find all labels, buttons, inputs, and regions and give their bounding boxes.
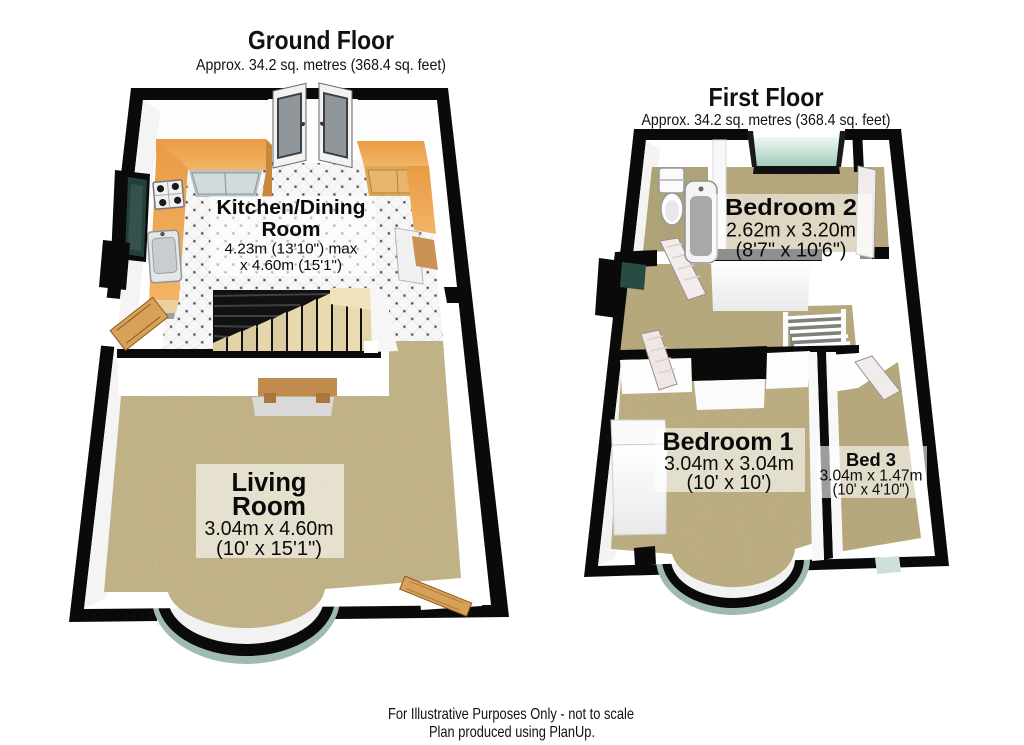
svg-text:3.04m x 4.60m: 3.04m x 4.60m bbox=[205, 518, 334, 540]
svg-text:4.23m (13'10") max: 4.23m (13'10") max bbox=[225, 241, 358, 258]
svg-text:(10' x 10'): (10' x 10') bbox=[687, 472, 772, 494]
svg-text:Approx. 34.2 sq. metres (368.4: Approx. 34.2 sq. metres (368.4 sq. feet) bbox=[196, 57, 446, 74]
svg-text:Room: Room bbox=[262, 218, 321, 241]
svg-text:Approx. 34.2 sq. metres (368.4: Approx. 34.2 sq. metres (368.4 sq. feet) bbox=[642, 112, 891, 129]
svg-text:For Illustrative Purposes Only: For Illustrative Purposes Only - not to … bbox=[388, 706, 634, 723]
svg-text:(10' x 4'10"): (10' x 4'10") bbox=[833, 482, 910, 499]
svg-text:Bedroom 1: Bedroom 1 bbox=[663, 428, 794, 456]
svg-text:Ground Floor: Ground Floor bbox=[248, 25, 394, 55]
svg-text:x 4.60m (15'1"): x 4.60m (15'1") bbox=[240, 257, 342, 274]
svg-text:2.62m x 3.20m: 2.62m x 3.20m bbox=[726, 220, 856, 242]
svg-text:Bedroom 2: Bedroom 2 bbox=[725, 194, 857, 220]
svg-text:Plan produced using PlanUp.: Plan produced using PlanUp. bbox=[429, 724, 595, 741]
svg-text:Room: Room bbox=[232, 493, 306, 521]
svg-text:(8'7" x 10'6"): (8'7" x 10'6") bbox=[736, 240, 847, 262]
svg-text:First Floor: First Floor bbox=[709, 82, 824, 112]
svg-text:Kitchen/Dining: Kitchen/Dining bbox=[217, 196, 366, 219]
svg-text:(10' x 15'1"): (10' x 15'1") bbox=[216, 538, 322, 560]
